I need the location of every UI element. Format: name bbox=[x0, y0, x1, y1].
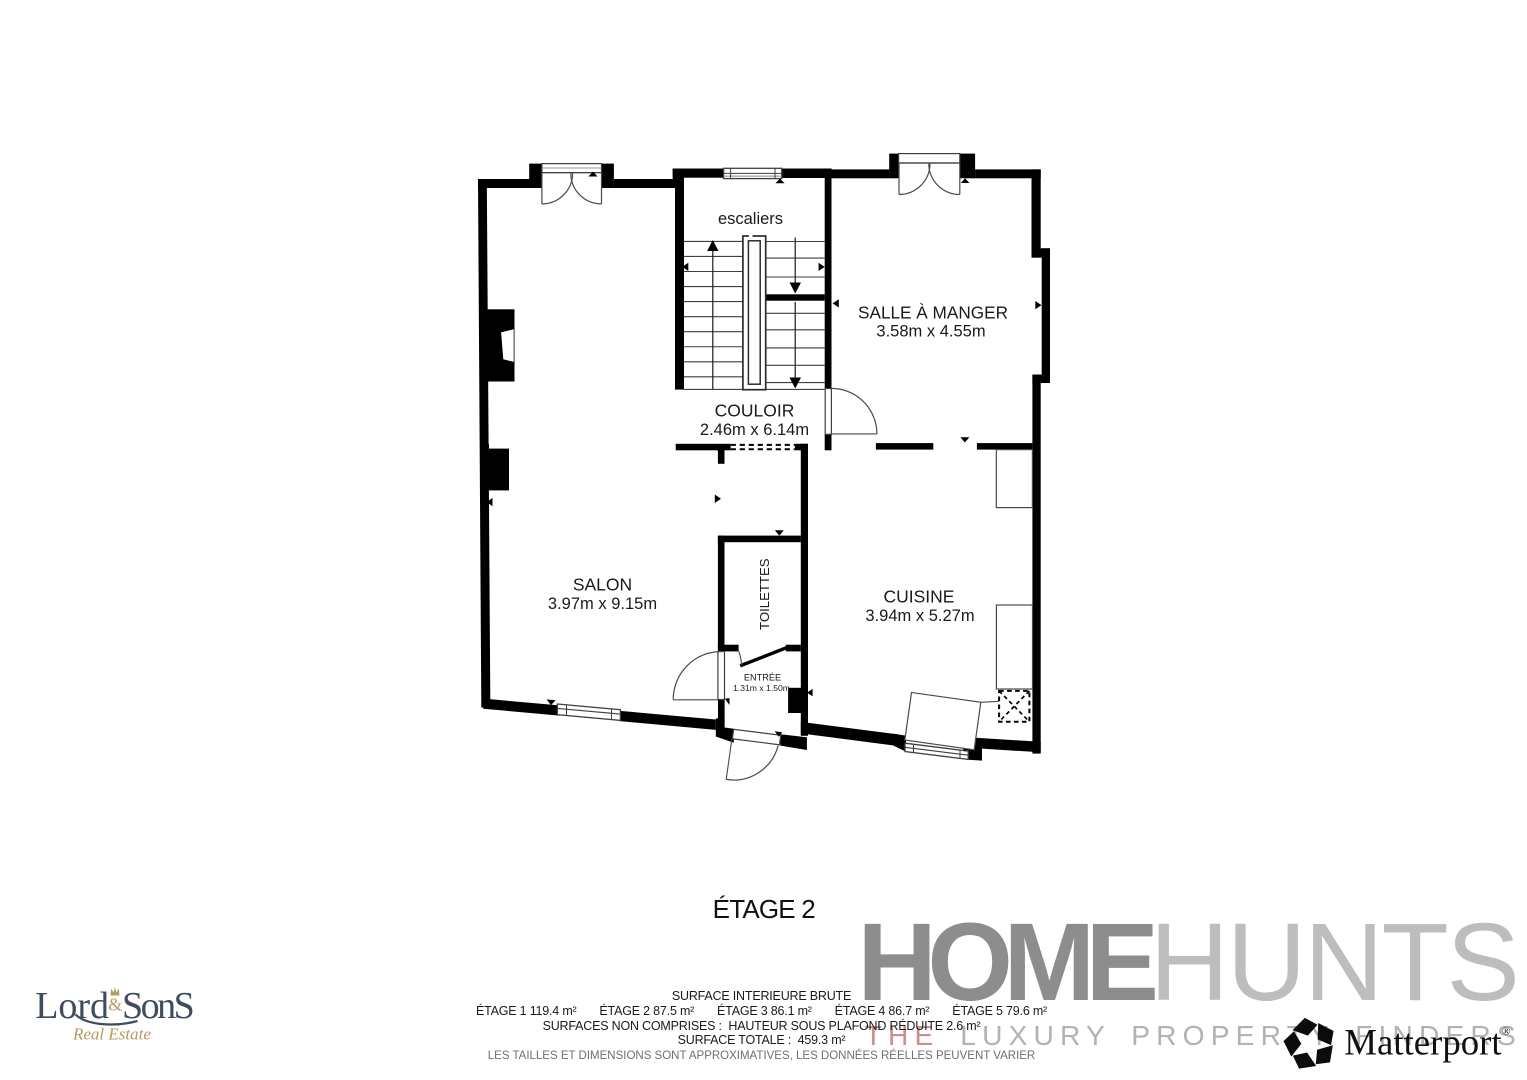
svg-text:Matterport: Matterport bbox=[1344, 1022, 1501, 1063]
svg-text:Real Estate: Real Estate bbox=[72, 1024, 151, 1043]
svg-text:3.97m x 9.15m: 3.97m x 9.15m bbox=[548, 595, 657, 613]
svg-text:COULOIR: COULOIR bbox=[715, 401, 795, 421]
svg-text:3.58m x 4.55m: 3.58m x 4.55m bbox=[876, 323, 985, 341]
svg-text:ENTRÉE: ENTRÉE bbox=[744, 673, 781, 683]
svg-text:&: & bbox=[108, 995, 122, 1015]
svg-text:SALLE À MANGER: SALLE À MANGER bbox=[858, 303, 1008, 323]
svg-text:escaliers: escaliers bbox=[718, 210, 783, 228]
svg-text:SonS: SonS bbox=[122, 985, 193, 1027]
svg-text:1.31m x 1.50m: 1.31m x 1.50m bbox=[733, 683, 790, 693]
svg-text:2.46m x 6.14m: 2.46m x 6.14m bbox=[700, 421, 809, 439]
svg-text:TOILETTES: TOILETTES bbox=[757, 558, 772, 630]
svg-text:®: ® bbox=[1502, 1026, 1510, 1038]
svg-text:CUISINE: CUISINE bbox=[884, 587, 955, 607]
svg-text:3.94m x 5.27m: 3.94m x 5.27m bbox=[865, 607, 974, 625]
svg-text:Lord: Lord bbox=[35, 985, 109, 1027]
svg-text:SALON: SALON bbox=[573, 575, 632, 595]
